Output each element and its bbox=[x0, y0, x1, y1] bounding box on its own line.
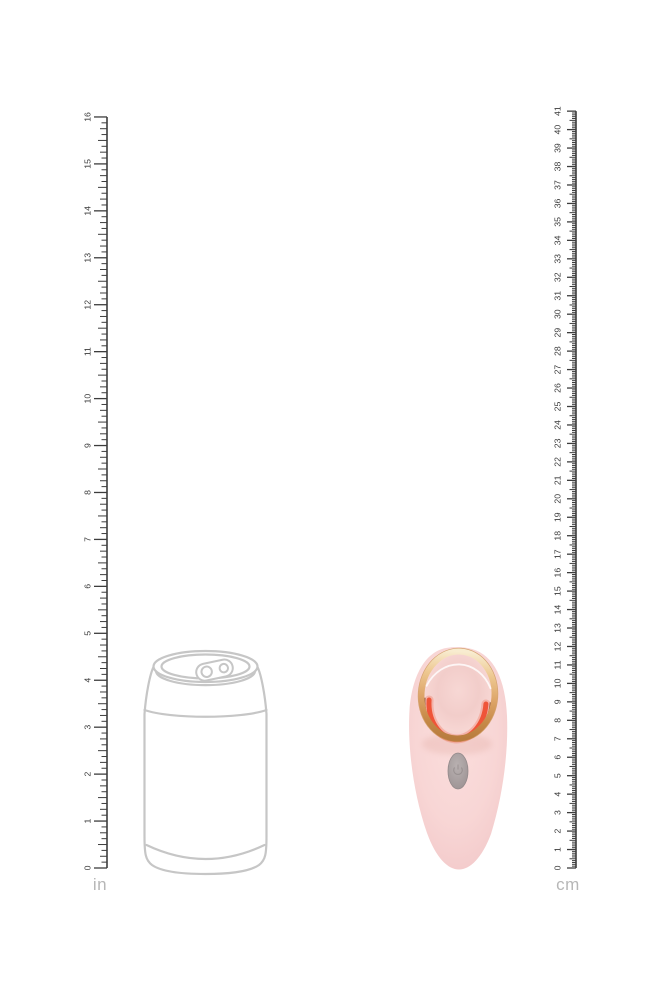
size-guide-image: 012345678910111213141516 012345678910111… bbox=[0, 0, 667, 1000]
power-button[interactable] bbox=[448, 753, 468, 789]
centimeters-unit-label: cm bbox=[546, 876, 590, 893]
product-illustration bbox=[0, 0, 667, 1000]
inches-unit-label: in bbox=[78, 876, 122, 893]
